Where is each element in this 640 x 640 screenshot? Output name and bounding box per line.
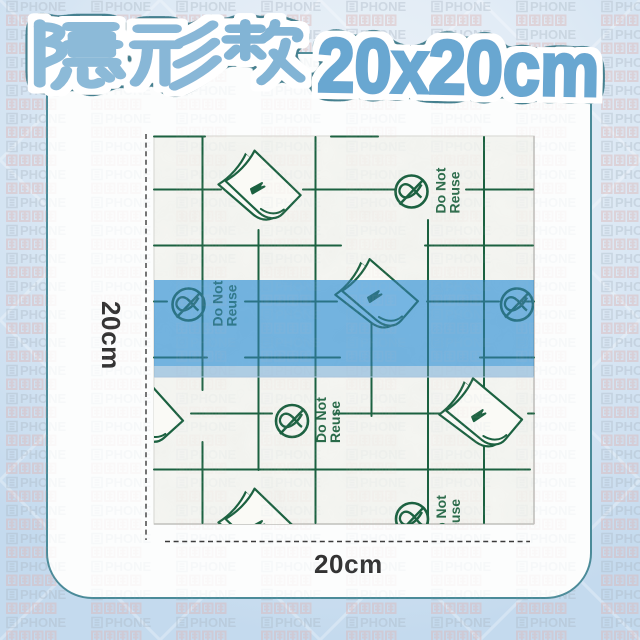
svg-text:20cm: 20cm xyxy=(96,301,126,370)
svg-text:Reuse: Reuse xyxy=(447,499,463,541)
svg-text:20cm: 20cm xyxy=(314,549,383,579)
svg-text:Reuse: Reuse xyxy=(447,171,463,213)
svg-text:20x20cm: 20x20cm xyxy=(317,23,600,113)
svg-text:Reuse: Reuse xyxy=(327,401,343,443)
